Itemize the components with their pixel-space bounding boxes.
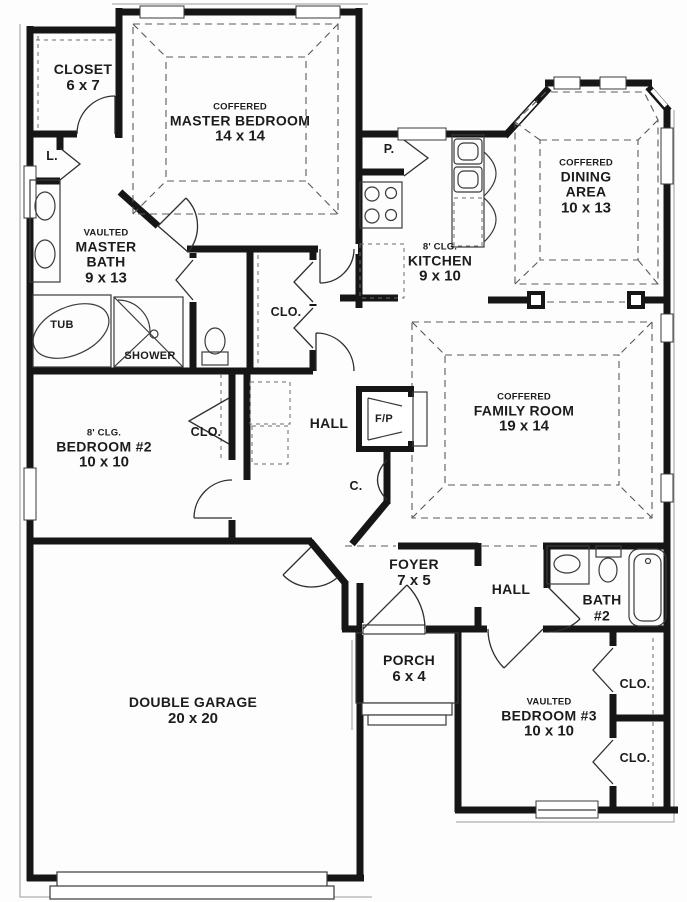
room-label-shower: SHOWER bbox=[124, 350, 175, 362]
master-toilet-fixture bbox=[202, 328, 228, 365]
garage-door bbox=[50, 872, 334, 899]
room-label-master-clo: CLO. bbox=[271, 305, 302, 319]
room-label-bedroom2-clo: CLO. bbox=[191, 425, 222, 439]
dining-columns bbox=[527, 291, 645, 309]
room-label-tub: TUB bbox=[50, 319, 74, 331]
room-label-bedroom3-clo-lower: CLO. bbox=[620, 751, 651, 765]
door-openings bbox=[77, 129, 618, 786]
floor-plan-page: CLOSET 6 x 7 COFFERED MASTER BEDROOM 14 … bbox=[0, 0, 687, 902]
room-label-garage: DOUBLE GARAGE 20 x 20 bbox=[129, 695, 257, 727]
room-label-dining-area: COFFERED DINING AREA 10 x 13 bbox=[549, 159, 623, 218]
room-label-family-room: COFFERED FAMILY ROOM 19 x 14 bbox=[474, 392, 575, 435]
room-label-bedroom3: VAULTED BEDROOM #3 10 x 10 bbox=[501, 697, 597, 740]
room-label-bedroom3-clo-upper: CLO. bbox=[620, 677, 651, 691]
room-label-pantry: P. bbox=[384, 142, 395, 156]
room-label-hall-upper: HALL bbox=[310, 416, 349, 432]
room-label-bath2: BATH #2 bbox=[575, 592, 629, 623]
room-label-coat-closet: C. bbox=[350, 479, 363, 493]
kitchen-sink-peninsula-fixture bbox=[452, 135, 496, 247]
stove-fixture bbox=[360, 182, 402, 228]
room-label-linen-closet: L. bbox=[46, 149, 58, 163]
room-label-kitchen: 8' CLG. KITCHEN 9 x 10 bbox=[408, 242, 472, 285]
room-label-bedroom2: 8' CLG. BEDROOM #2 10 x 10 bbox=[56, 428, 152, 471]
room-label-foyer: FOYER 7 x 5 bbox=[389, 557, 439, 589]
room-label-fireplace: F/P bbox=[375, 413, 393, 425]
room-label-hall-lower: HALL bbox=[492, 582, 531, 598]
room-label-master-bath: VAULTED MASTER BATH 9 x 13 bbox=[66, 229, 146, 288]
room-label-master-bedroom: COFFERED MASTER BEDROOM 14 x 14 bbox=[170, 102, 310, 145]
room-label-porch: PORCH 6 x 4 bbox=[383, 653, 435, 685]
room-label-master-closet: CLOSET 6 x 7 bbox=[54, 62, 113, 94]
